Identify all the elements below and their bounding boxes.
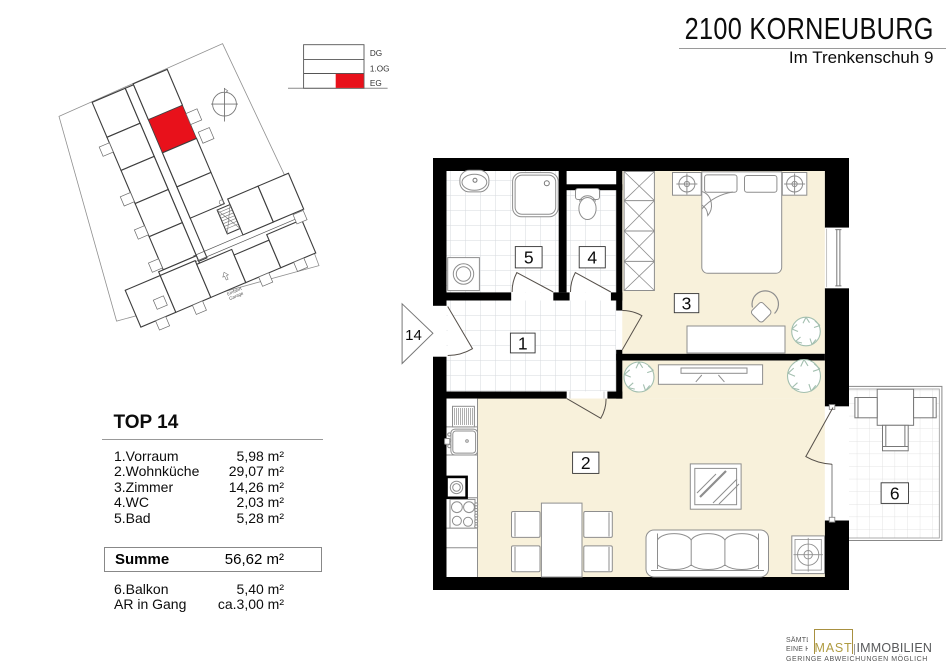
svg-text:6: 6 (890, 483, 900, 503)
svg-text:1: 1 (518, 333, 528, 353)
svg-text:3: 3 (682, 294, 692, 314)
svg-text:5: 5 (524, 248, 534, 268)
svg-text:EG: EG (370, 79, 382, 88)
svg-text:1.OG: 1.OG (370, 65, 390, 74)
svg-text:DG: DG (370, 49, 382, 58)
svg-text:4: 4 (587, 248, 597, 268)
svg-text:14: 14 (405, 327, 422, 344)
svg-text:2: 2 (581, 453, 591, 473)
